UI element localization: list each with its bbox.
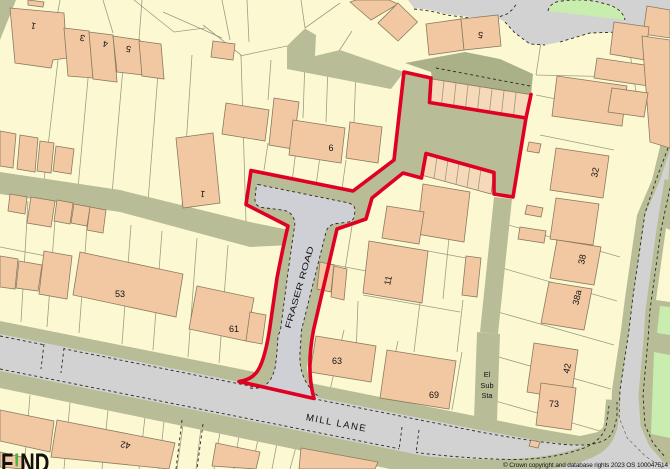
svg-text:Sub: Sub [480, 381, 493, 390]
svg-text:Sta: Sta [481, 391, 493, 400]
svg-text:61: 61 [229, 324, 239, 334]
svg-text:63: 63 [332, 356, 342, 366]
svg-text:F!ND: F!ND [1, 448, 49, 469]
svg-text:69: 69 [429, 390, 439, 400]
svg-text:42: 42 [120, 439, 132, 451]
svg-text:53: 53 [115, 289, 125, 299]
svg-text:© Crown copyright and database: © Crown copyright and database rights 20… [503, 461, 668, 469]
svg-text:42: 42 [561, 362, 573, 374]
svg-text:73: 73 [549, 399, 559, 409]
svg-text:6: 6 [328, 143, 333, 153]
svg-text:El: El [484, 370, 491, 379]
svg-text:32: 32 [589, 166, 601, 178]
svg-text:38: 38 [576, 253, 588, 265]
